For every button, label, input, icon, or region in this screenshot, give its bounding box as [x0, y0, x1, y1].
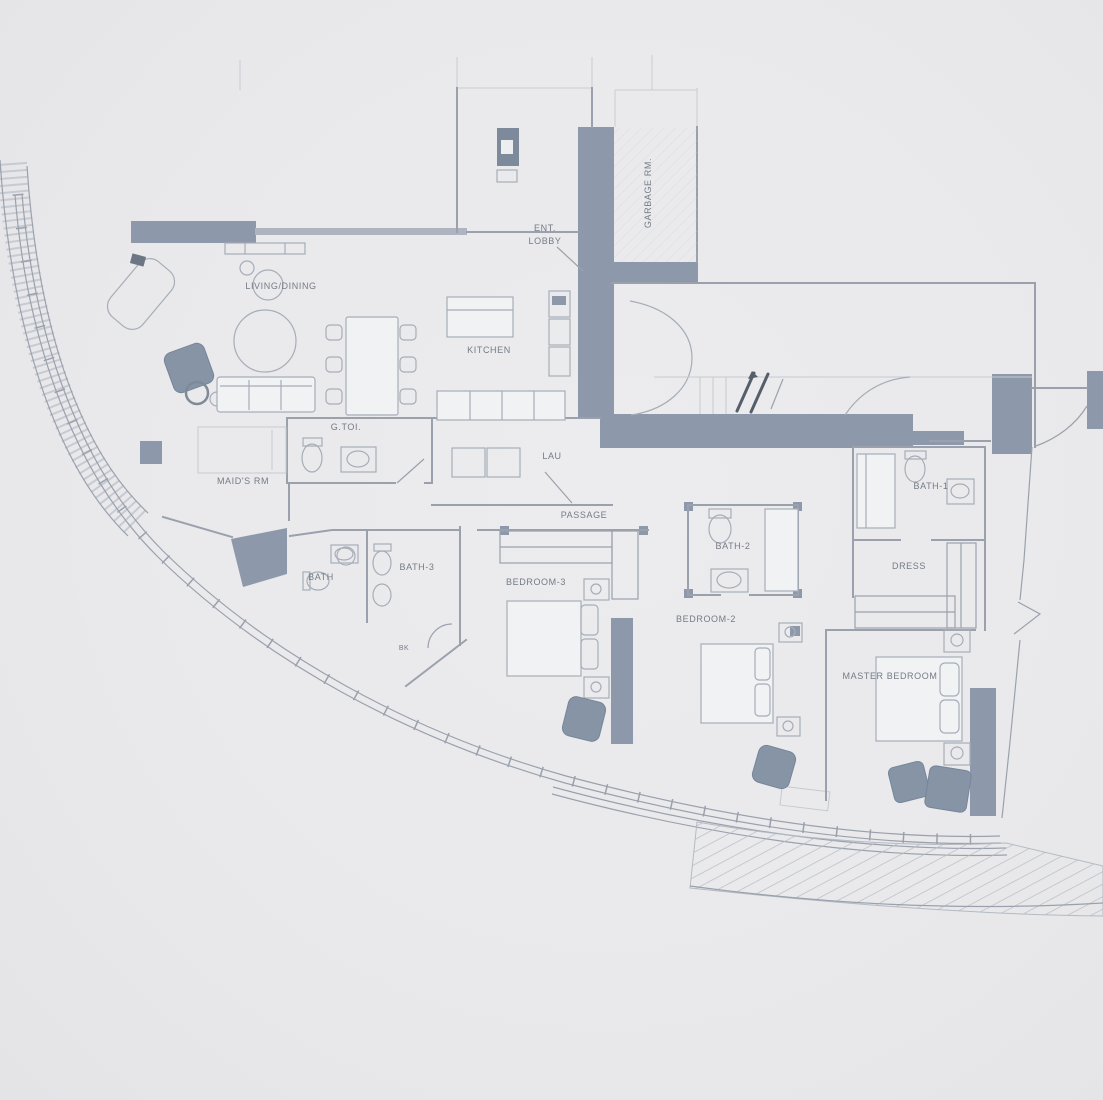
bath3-fixtures: [337, 544, 391, 606]
room-label-passage: PASSAGE: [561, 510, 608, 520]
room-label-bath-1: BATH-1: [914, 481, 949, 491]
tv-console-icon: [225, 243, 305, 254]
lounge-chair-icon: [102, 253, 283, 335]
bed-icon: [507, 601, 598, 676]
armchair-icon: [561, 695, 608, 743]
nightstand-icon: [944, 630, 970, 652]
room-label-garbage-rm: GARBAGE RM.: [643, 158, 653, 228]
armchair-icon: [750, 743, 797, 790]
toilet-icon: [373, 551, 391, 575]
floor-plan: LIVING/DINING ENT. LOBBY GARBAGE RM. KIT…: [0, 0, 1103, 1100]
break-line-symbol: [1014, 602, 1040, 634]
room-label-maids-rm: MAID'S RM: [217, 476, 269, 486]
room-label-bath: BATH: [308, 572, 334, 582]
room-label-guest-toilet: G.TOI.: [331, 422, 361, 432]
bath-fixtures: [303, 545, 358, 590]
stair-direction-arrow: [748, 371, 758, 379]
sofa-icon: [217, 377, 315, 412]
shower-icon: [765, 509, 798, 591]
washer-icon: [452, 448, 485, 477]
wardrobe-icon: [612, 531, 638, 599]
bed-icon: [701, 644, 773, 723]
garbage-room: [614, 128, 697, 262]
shower-icon: [857, 454, 895, 528]
bidet-icon: [373, 584, 391, 606]
nightstand-icon: [944, 743, 970, 765]
unit-right-boundary: [1002, 406, 1087, 818]
master-bedroom-furniture: [876, 630, 972, 813]
room-label-kitchen: KITCHEN: [467, 345, 511, 355]
bedroom2-furniture: [701, 623, 802, 791]
deck-planter-icon: [780, 786, 830, 811]
stair-core: [630, 301, 1032, 415]
room-label-master-bedroom: MASTER BEDROOM: [843, 671, 938, 681]
nightstand-icon: [584, 677, 609, 698]
kitchen-fixtures: [437, 291, 570, 420]
room-label-ent-lobby-1: ENT.: [534, 223, 556, 233]
dimension-guides: [240, 55, 697, 127]
maids-bed-icon: [198, 427, 286, 473]
dressing-wardrobes: [855, 543, 976, 628]
bath3-door-swing: [428, 624, 452, 648]
toilet-icon: [709, 515, 731, 543]
armchair-icon: [887, 760, 931, 804]
maids-room-furniture: [198, 427, 286, 473]
round-rug-icon: [234, 310, 296, 372]
nightstand-icon: [777, 717, 800, 736]
laundry-fixtures: [452, 448, 520, 477]
room-label-living-dining: LIVING/DINING: [245, 281, 316, 291]
armchair-icon: [924, 765, 972, 813]
room-label-bath-3: BATH-3: [400, 562, 435, 572]
dryer-icon: [487, 448, 520, 477]
living-dining-furniture: [102, 243, 416, 415]
dining-table-icon: [326, 317, 416, 415]
toilet-icon: [905, 456, 925, 482]
laundry-door-swing: [545, 472, 572, 503]
nightstand-icon: [584, 579, 609, 600]
room-label-bath-2: BATH-2: [716, 541, 751, 551]
room-label-laundry: LAU: [542, 451, 561, 461]
floor-plan-drawing: LIVING/DINING ENT. LOBBY GARBAGE RM. KIT…: [0, 0, 1103, 1100]
room-label-dress: DRESS: [892, 561, 926, 571]
room-label-bk: BK: [399, 645, 409, 652]
lower-balcony-deck: [552, 786, 1103, 916]
curved-balcony-band: [0, 160, 148, 536]
toilet-door-swing: [397, 459, 424, 483]
room-label-bedroom-2: BEDROOM-2: [676, 614, 736, 624]
bed-icon: [876, 657, 962, 741]
guest-toilet-fixtures: [302, 438, 376, 472]
kitchen-island-icon: [447, 297, 513, 337]
kitchen-counter-icon: [437, 391, 565, 420]
room-label-bedroom-3: BEDROOM-3: [506, 577, 566, 587]
toilet-icon: [302, 444, 322, 472]
room-label-ent-lobby-2: LOBBY: [528, 236, 561, 246]
